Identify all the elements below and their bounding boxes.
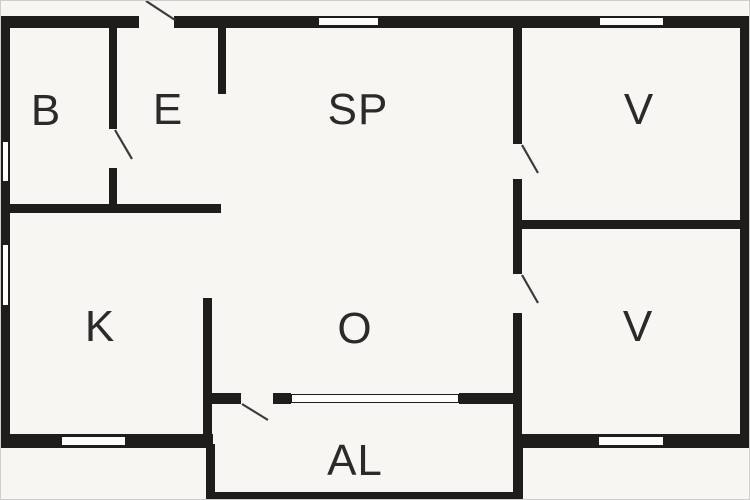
wall-k-o-divider	[203, 298, 212, 448]
window-bottom-k	[61, 436, 126, 446]
wall-o-al-segment-1	[203, 393, 241, 404]
room-label-v-top: V	[624, 88, 654, 132]
door-swing-o-to-al	[242, 404, 268, 420]
door-swing-sp-to-v	[522, 145, 538, 173]
room-label-o: O	[337, 307, 372, 351]
window-left-k	[2, 244, 9, 306]
window-bottom-v	[598, 436, 664, 446]
room-label-sp: SP	[328, 88, 389, 132]
door-swing-b-to-e	[115, 130, 132, 159]
window-top-v	[599, 17, 664, 26]
wall-b-e-lower	[109, 168, 117, 206]
window-left-b	[2, 141, 9, 182]
room-label-e: E	[153, 88, 183, 132]
room-label-k: K	[85, 305, 115, 349]
wall-be-k-divider	[1, 204, 221, 213]
wall-sp-v-lower	[513, 313, 522, 448]
wall-exterior-left	[1, 16, 10, 448]
room-label-b: B	[31, 89, 61, 133]
room-label-v-bottom: V	[623, 305, 653, 349]
wall-b-e-upper	[109, 28, 117, 129]
floor-plan: BESPVKOVAL	[0, 0, 750, 500]
wall-exterior-right	[740, 16, 750, 448]
window-o-al	[291, 394, 459, 403]
wall-e-sp-stub	[218, 28, 226, 94]
wall-o-al-segment-3	[459, 393, 522, 404]
wall-v-v-divider	[513, 220, 750, 229]
wall-al-bottom	[206, 492, 523, 500]
room-label-al: AL	[327, 439, 383, 483]
door-opening-entry-top	[139, 15, 174, 29]
window-top-sp	[318, 17, 379, 26]
door-swing-o-to-v	[522, 275, 538, 303]
wall-o-al-segment-2	[273, 393, 291, 404]
wall-sp-v-upper	[513, 28, 522, 144]
